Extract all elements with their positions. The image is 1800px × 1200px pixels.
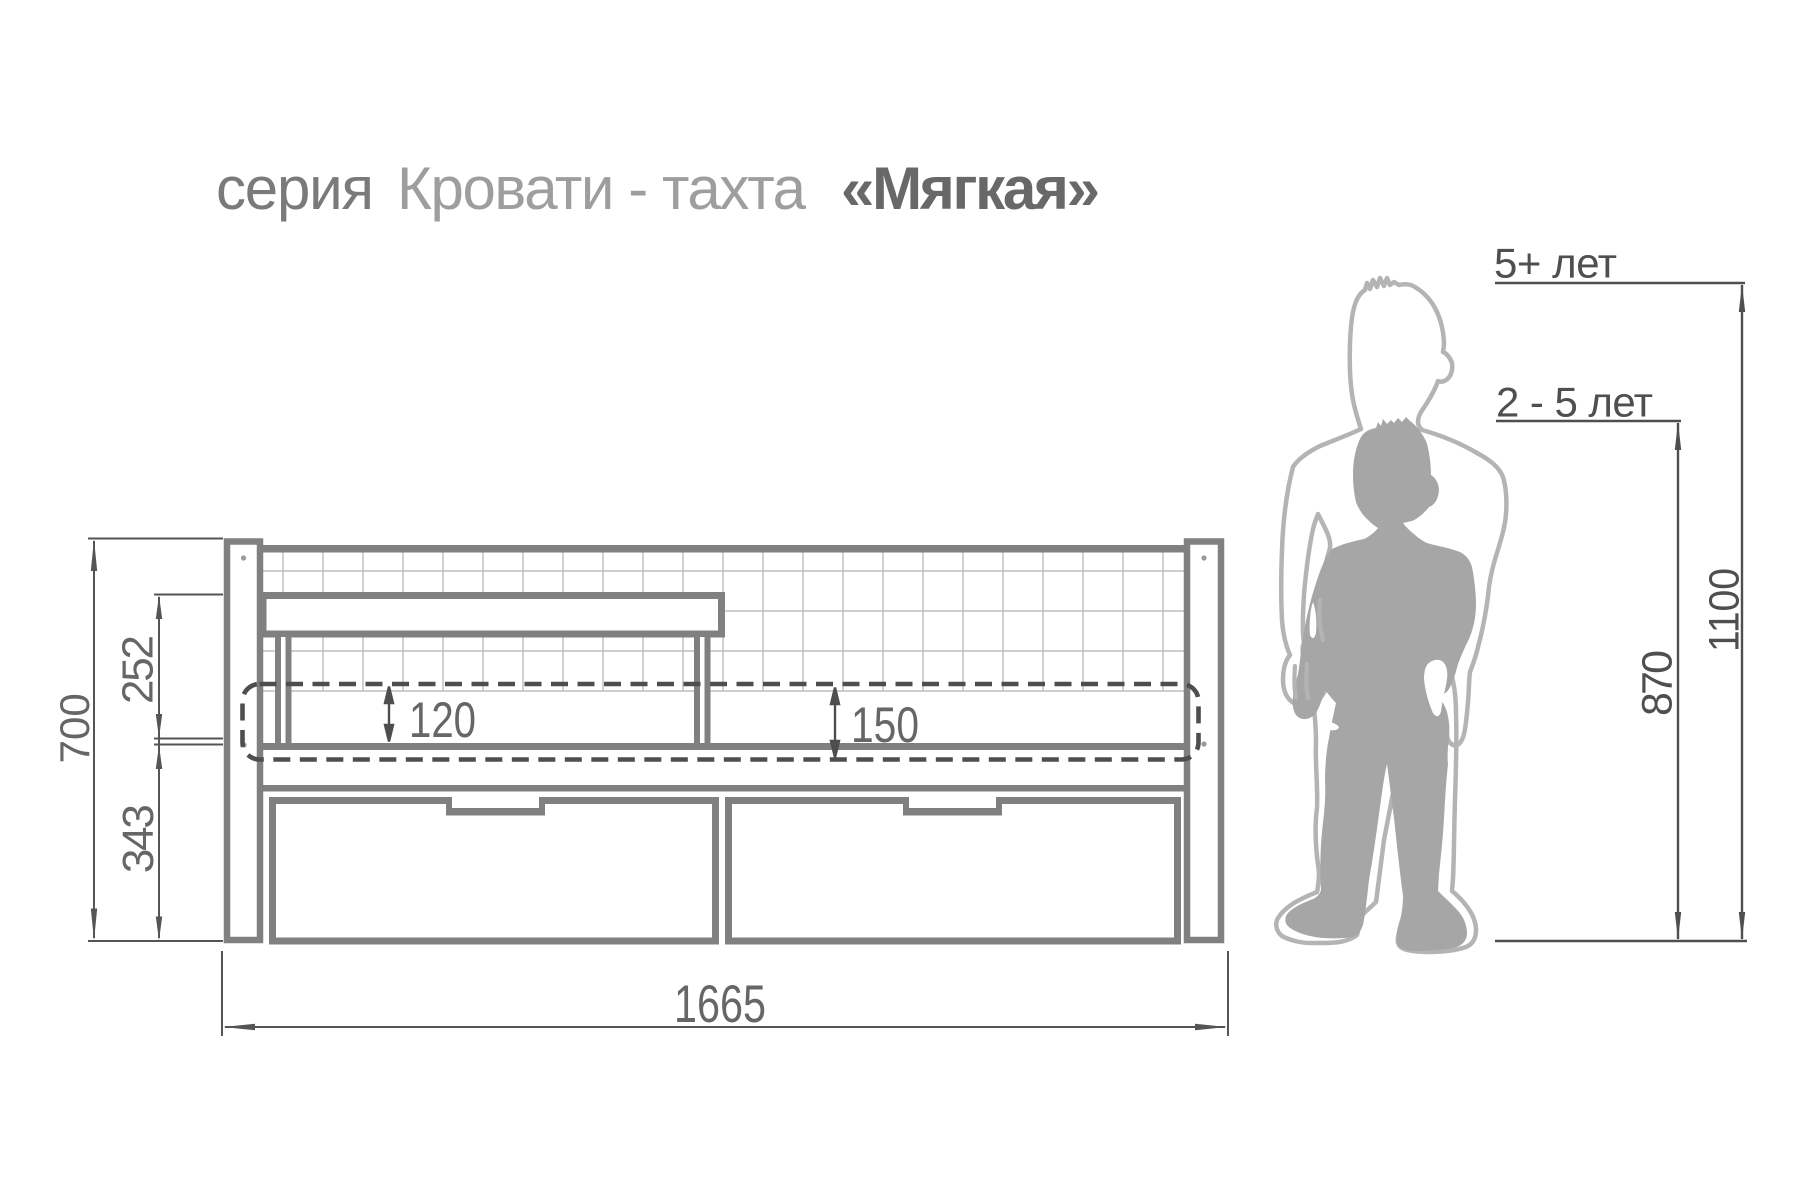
svg-text:1665: 1665 <box>674 975 766 1034</box>
svg-text:343: 343 <box>114 804 163 873</box>
svg-text:252: 252 <box>114 635 163 704</box>
svg-text:150: 150 <box>851 697 919 753</box>
svg-text:серия: серия <box>216 155 374 222</box>
svg-text:2 - 5 лет: 2 - 5 лет <box>1496 379 1653 426</box>
svg-text:Кровати - тахта: Кровати - тахта <box>397 155 807 222</box>
svg-text:120: 120 <box>409 692 476 748</box>
svg-text:1100: 1100 <box>1700 568 1748 652</box>
svg-text:700: 700 <box>51 693 98 763</box>
svg-text:«Мягкая»: «Мягкая» <box>841 155 1100 222</box>
svg-text:870: 870 <box>1633 650 1681 716</box>
svg-text:5+ лет: 5+ лет <box>1494 240 1617 287</box>
